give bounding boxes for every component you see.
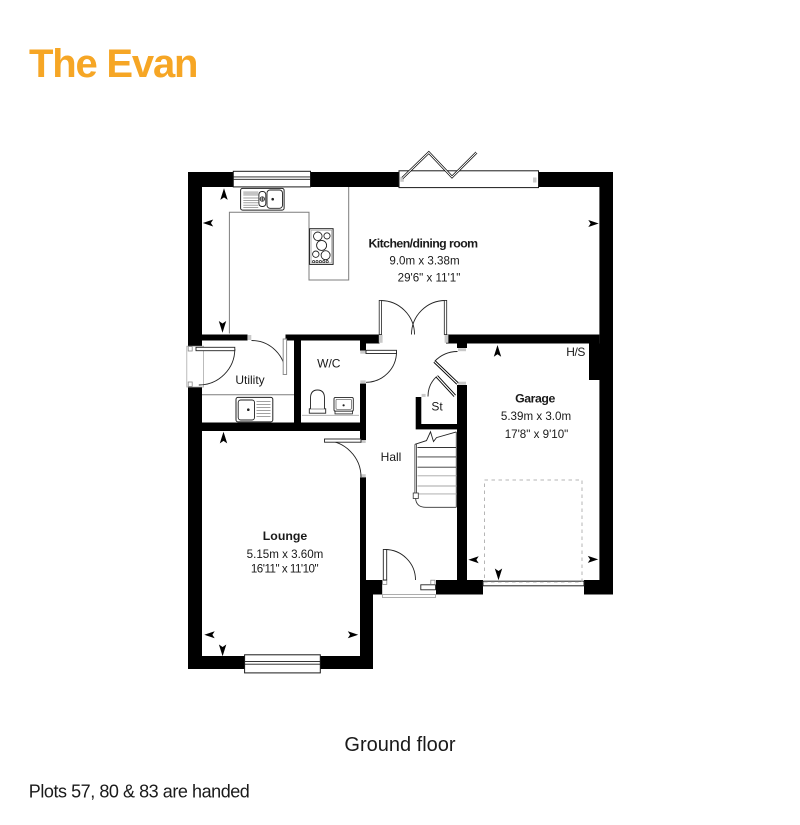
svg-text:17'8" x 9'10": 17'8" x 9'10" [505, 428, 569, 441]
svg-text:W/C: W/C [317, 357, 341, 371]
svg-text:16'11" x 11'10": 16'11" x 11'10" [251, 563, 319, 576]
svg-text:Kitchen/dining room: Kitchen/dining room [368, 237, 478, 251]
svg-text:Garage: Garage [515, 392, 555, 406]
svg-text:H/S: H/S [566, 345, 585, 359]
svg-text:5.15m x 3.60m: 5.15m x 3.60m [247, 548, 324, 561]
svg-text:The Evan: The Evan [29, 42, 197, 86]
svg-text:9.0m x 3.38m: 9.0m x 3.38m [389, 255, 459, 268]
svg-text:29'6" x 11'1": 29'6" x 11'1" [398, 272, 461, 285]
svg-text:Plots 57, 80 & 83 are handed: Plots 57, 80 & 83 are handed [29, 782, 250, 802]
svg-text:Lounge: Lounge [263, 529, 308, 543]
svg-text:Utility: Utility [235, 373, 264, 387]
svg-text:5.39m x 3.0m: 5.39m x 3.0m [501, 410, 571, 423]
svg-text:St: St [431, 400, 443, 414]
svg-text:Ground floor: Ground floor [344, 734, 456, 756]
svg-text:Hall: Hall [381, 450, 402, 464]
